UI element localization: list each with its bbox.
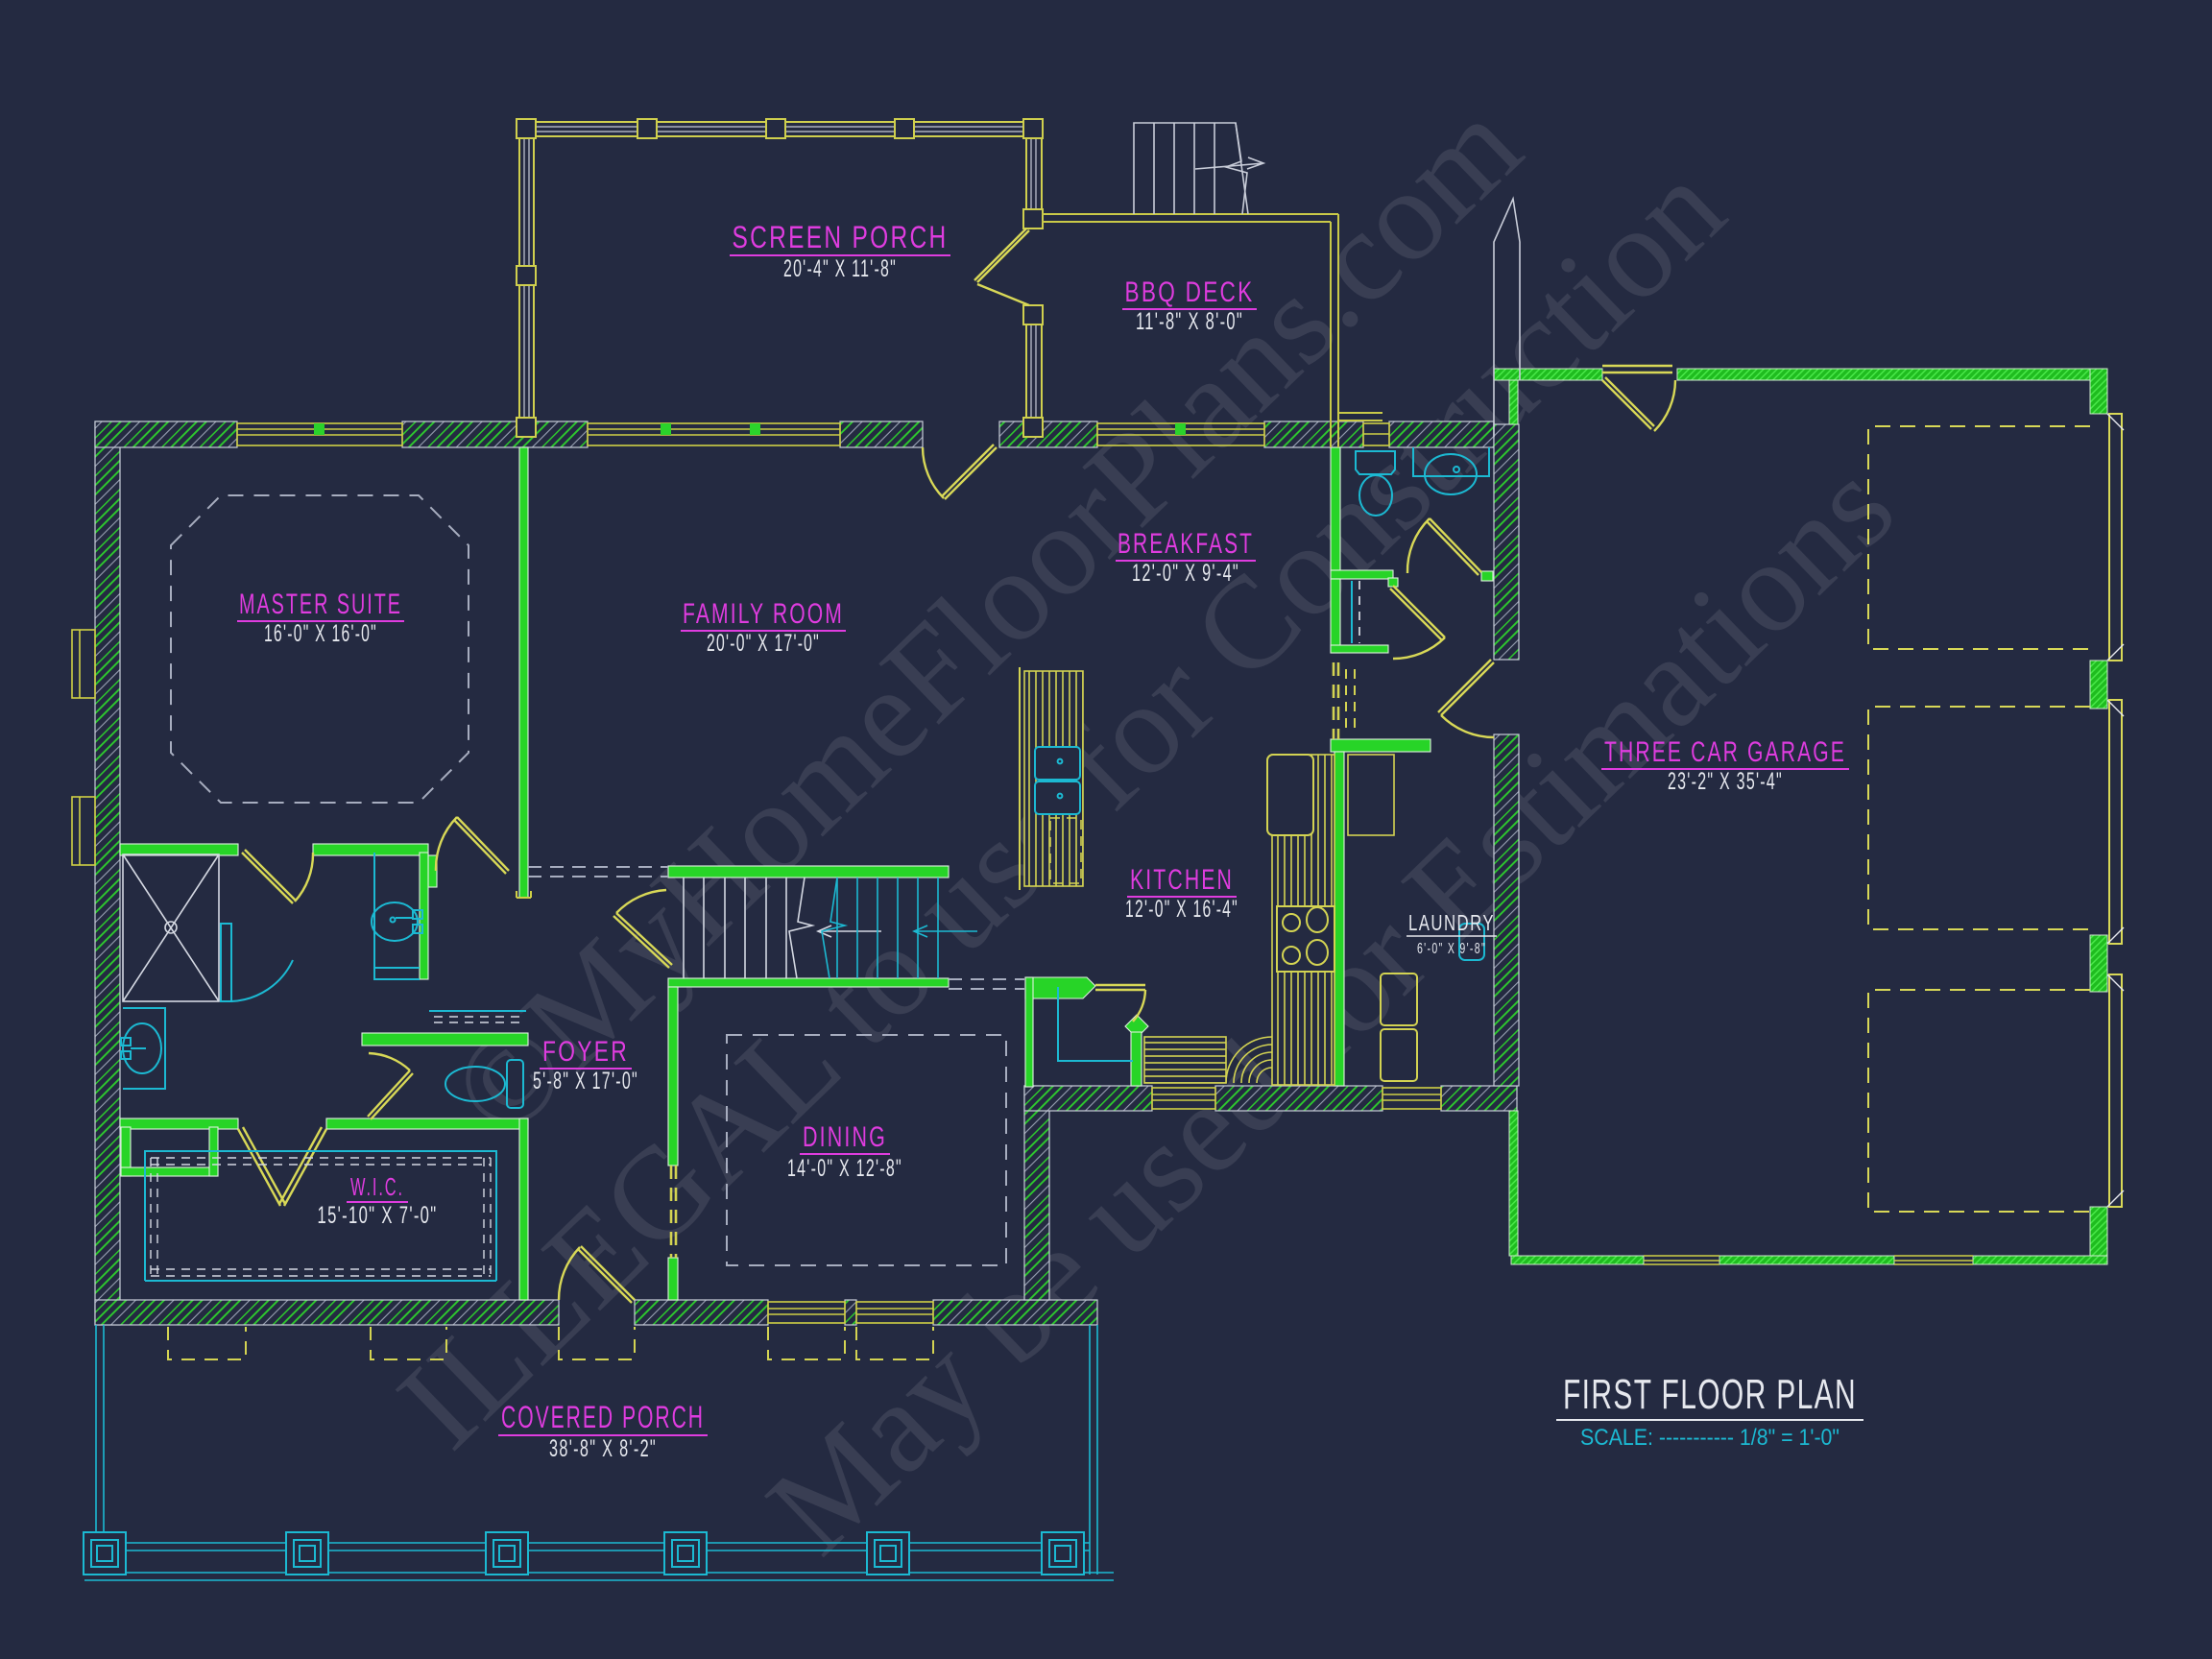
svg-text:FIRST FLOOR PLAN: FIRST FLOOR PLAN	[1563, 1371, 1857, 1418]
svg-text:38'-8" X 8'-2": 38'-8" X 8'-2"	[549, 1435, 657, 1462]
svg-text:THREE CAR GARAGE: THREE CAR GARAGE	[1604, 736, 1846, 768]
svg-text:LAUNDRY: LAUNDRY	[1408, 910, 1495, 935]
svg-text:BREAKFAST: BREAKFAST	[1118, 528, 1254, 560]
svg-text:FOYER: FOYER	[542, 1036, 629, 1068]
svg-text:20'-0" X 17'-0": 20'-0" X 17'-0"	[707, 630, 820, 657]
svg-text:5'-8" X 17'-0": 5'-8" X 17'-0"	[533, 1068, 638, 1094]
svg-text:MASTER SUITE: MASTER SUITE	[239, 589, 402, 620]
svg-text:BBQ DECK: BBQ DECK	[1125, 276, 1255, 308]
svg-text:11'-8" X 8'-0": 11'-8" X 8'-0"	[1136, 308, 1243, 335]
svg-text:15'-10" X 7'-0": 15'-10" X 7'-0"	[318, 1202, 438, 1229]
svg-text:23'-2" X 35'-4": 23'-2" X 35'-4"	[1668, 768, 1783, 795]
svg-text:16'-0" X 16'-0": 16'-0" X 16'-0"	[264, 620, 377, 647]
svg-text:W.I.C.: W.I.C.	[350, 1172, 404, 1201]
svg-text:DINING: DINING	[803, 1121, 887, 1153]
svg-text:COVERED PORCH: COVERED PORCH	[501, 1400, 705, 1434]
svg-text:12'-0" X 9'-4": 12'-0" X 9'-4"	[1132, 560, 1239, 587]
svg-text:6'-0" X 9'-8": 6'-0" X 9'-8"	[1417, 941, 1486, 957]
svg-text:14'-0" X 12'-8": 14'-0" X 12'-8"	[787, 1155, 902, 1182]
svg-text:SCREEN PORCH: SCREEN PORCH	[733, 220, 949, 254]
svg-text:KITCHEN: KITCHEN	[1130, 864, 1234, 896]
svg-text:SCALE: ----------- 1/8" = 1'-0: SCALE: ----------- 1/8" = 1'-0"	[1580, 1425, 1839, 1451]
svg-text:12'-0" X 16'-4": 12'-0" X 16'-4"	[1125, 896, 1238, 923]
svg-text:FAMILY ROOM: FAMILY ROOM	[683, 598, 844, 630]
svg-text:20'-4" X 11'-8": 20'-4" X 11'-8"	[783, 255, 897, 282]
